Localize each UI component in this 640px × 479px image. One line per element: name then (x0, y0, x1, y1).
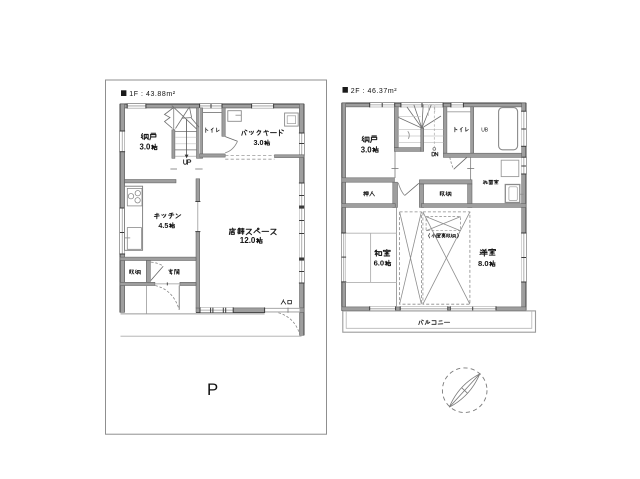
svg-text:3.0: 3.0 (253, 138, 263, 147)
svg-text:UB: UB (481, 128, 488, 134)
svg-text:1F : 43.88m²: 1F : 43.88m² (129, 91, 175, 98)
svg-text:P: P (207, 380, 218, 399)
svg-text:3.0: 3.0 (140, 143, 152, 152)
svg-text:2F : 46.37m²: 2F : 46.37m² (351, 88, 397, 95)
svg-text:3.0: 3.0 (361, 145, 373, 154)
svg-text:6.0: 6.0 (374, 259, 385, 268)
svg-text:12.0: 12.0 (240, 236, 256, 245)
svg-text:4.5: 4.5 (158, 221, 168, 230)
svg-text:8.0: 8.0 (478, 259, 489, 268)
